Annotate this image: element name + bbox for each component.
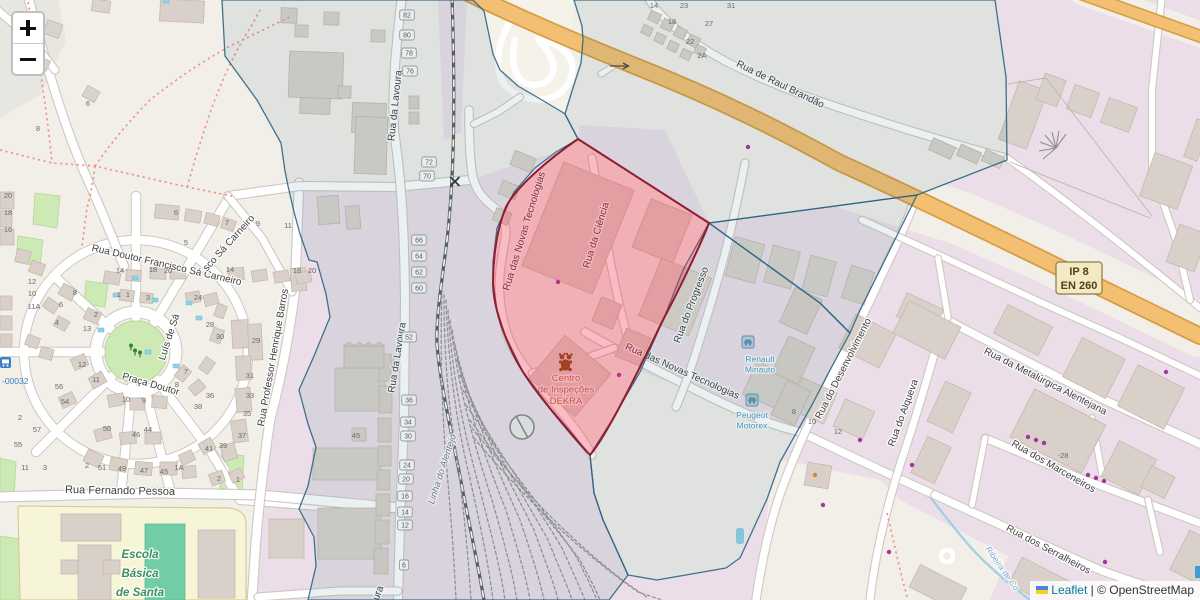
svg-text:11: 11 <box>21 463 29 472</box>
svg-text:41: 41 <box>205 444 213 453</box>
svg-text:35: 35 <box>243 409 251 418</box>
svg-text:1: 1 <box>126 290 130 299</box>
svg-text:6: 6 <box>86 99 90 108</box>
svg-text:37: 37 <box>238 431 246 440</box>
svg-text:Básica: Básica <box>121 568 159 580</box>
svg-text:29: 29 <box>252 336 260 345</box>
svg-text:20: 20 <box>164 266 172 275</box>
svg-text:12: 12 <box>28 277 36 286</box>
svg-text:11A: 11A <box>28 302 41 311</box>
svg-text:55: 55 <box>14 440 22 449</box>
svg-text:1A: 1A <box>174 463 183 472</box>
svg-text:Rua Fernando Pessoa: Rua Fernando Pessoa <box>65 484 176 498</box>
svg-text:16: 16 <box>4 225 12 234</box>
svg-text:9: 9 <box>256 219 260 228</box>
svg-text:4: 4 <box>55 318 59 327</box>
svg-text:39: 39 <box>219 441 227 450</box>
svg-text:44: 44 <box>144 425 152 434</box>
svg-text:2: 2 <box>94 310 98 319</box>
svg-text:9: 9 <box>142 396 146 405</box>
svg-text:18: 18 <box>293 266 301 275</box>
svg-text:10: 10 <box>808 417 816 426</box>
svg-text:EN 260: EN 260 <box>1061 280 1098 292</box>
svg-text:6: 6 <box>59 300 63 309</box>
svg-text:33: 33 <box>246 391 254 400</box>
svg-text:28: 28 <box>206 320 214 329</box>
svg-text:-28: -28 <box>1058 451 1069 460</box>
svg-text:2: 2 <box>18 413 22 422</box>
svg-text:49: 49 <box>118 464 126 473</box>
svg-text:1: 1 <box>236 475 240 484</box>
svg-text:14: 14 <box>116 266 124 275</box>
svg-text:2: 2 <box>217 474 221 483</box>
svg-text:18: 18 <box>149 265 157 274</box>
svg-text:3: 3 <box>146 293 150 302</box>
svg-text:12: 12 <box>78 360 86 369</box>
svg-text:1: 1 <box>117 290 121 299</box>
svg-text:-00032: -00032 <box>2 376 29 386</box>
svg-text:8: 8 <box>73 288 77 297</box>
svg-text:50: 50 <box>103 424 111 433</box>
svg-text:45: 45 <box>160 467 168 476</box>
svg-text:3: 3 <box>43 463 47 472</box>
svg-text:20: 20 <box>4 191 12 200</box>
svg-text:57: 57 <box>33 425 41 434</box>
svg-text:24: 24 <box>194 293 202 302</box>
svg-text:20: 20 <box>308 266 316 275</box>
svg-text:IP 8: IP 8 <box>1069 266 1088 278</box>
svg-text:18: 18 <box>4 208 12 217</box>
svg-text:5: 5 <box>184 238 188 247</box>
svg-text:7: 7 <box>184 367 188 376</box>
svg-text:31: 31 <box>246 371 254 380</box>
svg-text:de Santa: de Santa <box>116 587 165 599</box>
svg-text:54: 54 <box>61 397 69 406</box>
svg-text:30: 30 <box>216 332 224 341</box>
svg-text:6: 6 <box>174 208 178 217</box>
svg-text:11: 11 <box>284 221 292 230</box>
svg-text:8: 8 <box>175 380 179 389</box>
svg-text:38: 38 <box>194 402 202 411</box>
svg-text:56: 56 <box>55 382 63 391</box>
svg-text:10: 10 <box>122 395 130 404</box>
svg-text:46: 46 <box>132 430 140 439</box>
svg-text:Escola: Escola <box>121 549 159 561</box>
svg-text:8: 8 <box>36 124 40 133</box>
svg-text:51: 51 <box>98 463 106 472</box>
svg-text:11: 11 <box>92 375 100 384</box>
svg-text:12: 12 <box>834 427 842 436</box>
svg-text:7: 7 <box>225 218 229 227</box>
svg-text:14: 14 <box>226 265 234 274</box>
svg-text:36: 36 <box>206 391 214 400</box>
svg-text:13: 13 <box>83 324 91 333</box>
svg-text:47: 47 <box>140 466 148 475</box>
svg-text:10: 10 <box>28 289 36 298</box>
svg-text:2: 2 <box>85 461 89 470</box>
